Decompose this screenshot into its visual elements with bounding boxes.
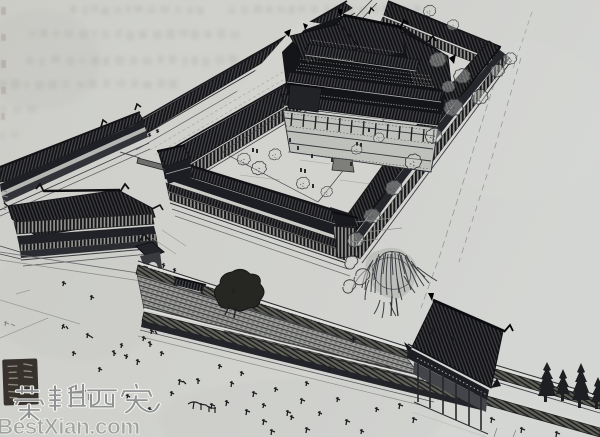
svg-text:BestXian.com: BestXian.com bbox=[0, 414, 140, 437]
